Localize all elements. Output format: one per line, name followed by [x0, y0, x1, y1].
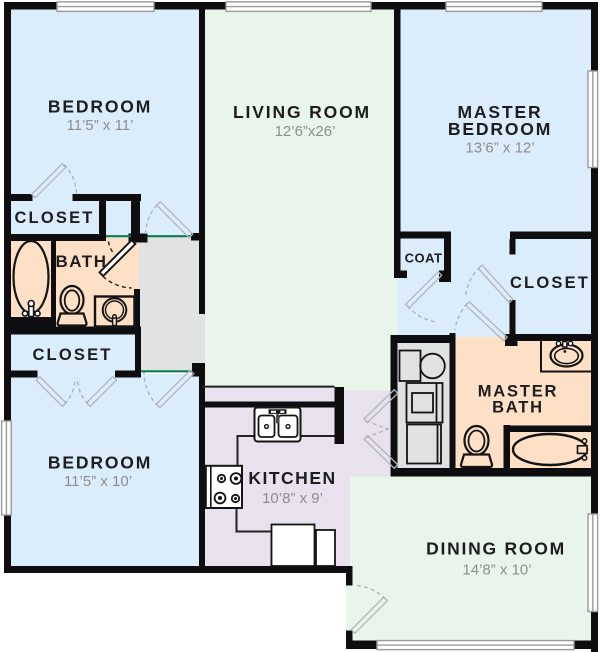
svg-text:BATH: BATH [492, 399, 544, 417]
svg-text:BEDROOM: BEDROOM [48, 453, 152, 473]
svg-text:CLOSET: CLOSET [32, 346, 112, 364]
svg-text:CLOSET: CLOSET [510, 274, 590, 292]
svg-text:12’6”x26’: 12’6”x26’ [275, 123, 336, 140]
svg-text:14’8” x 10’: 14’8” x 10’ [462, 562, 531, 579]
svg-text:11’5” x 11’: 11’5” x 11’ [67, 117, 134, 134]
svg-text:KITCHEN: KITCHEN [248, 468, 336, 488]
svg-text:10’8” x 9’: 10’8” x 9’ [262, 490, 323, 507]
svg-text:CLOSET: CLOSET [14, 209, 94, 227]
svg-text:LIVING ROOM: LIVING ROOM [233, 102, 371, 122]
svg-text:COAT: COAT [405, 251, 443, 266]
svg-text:DINING ROOM: DINING ROOM [426, 539, 566, 559]
svg-text:13’6” x 12’: 13’6” x 12’ [465, 140, 534, 157]
svg-text:11’5” x 10’: 11’5” x 10’ [64, 473, 132, 490]
svg-text:BEDROOM: BEDROOM [448, 119, 552, 139]
svg-text:BEDROOM: BEDROOM [48, 97, 152, 117]
svg-text:BATH: BATH [56, 252, 108, 271]
